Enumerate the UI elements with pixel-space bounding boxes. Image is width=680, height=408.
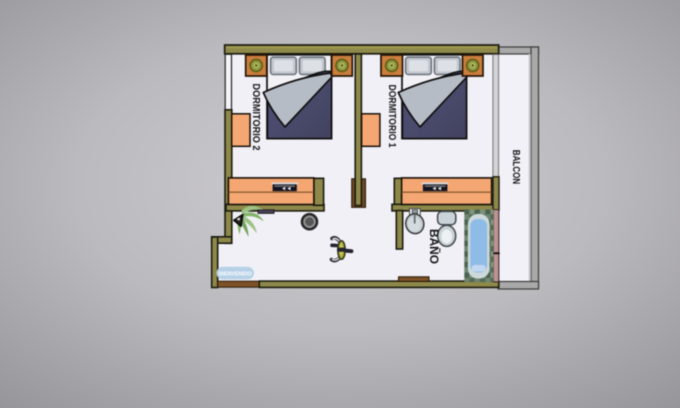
- svg-text:DORMITORIO 2: DORMITORIO 2: [250, 84, 261, 152]
- svg-text:DORMITORIO 1: DORMITORIO 1: [386, 85, 397, 148]
- svg-text:BIENVENIDO: BIENVENIDO: [219, 272, 252, 278]
- svg-text:BALCON: BALCON: [510, 150, 521, 185]
- svg-text:BAÑO: BAÑO: [427, 229, 442, 264]
